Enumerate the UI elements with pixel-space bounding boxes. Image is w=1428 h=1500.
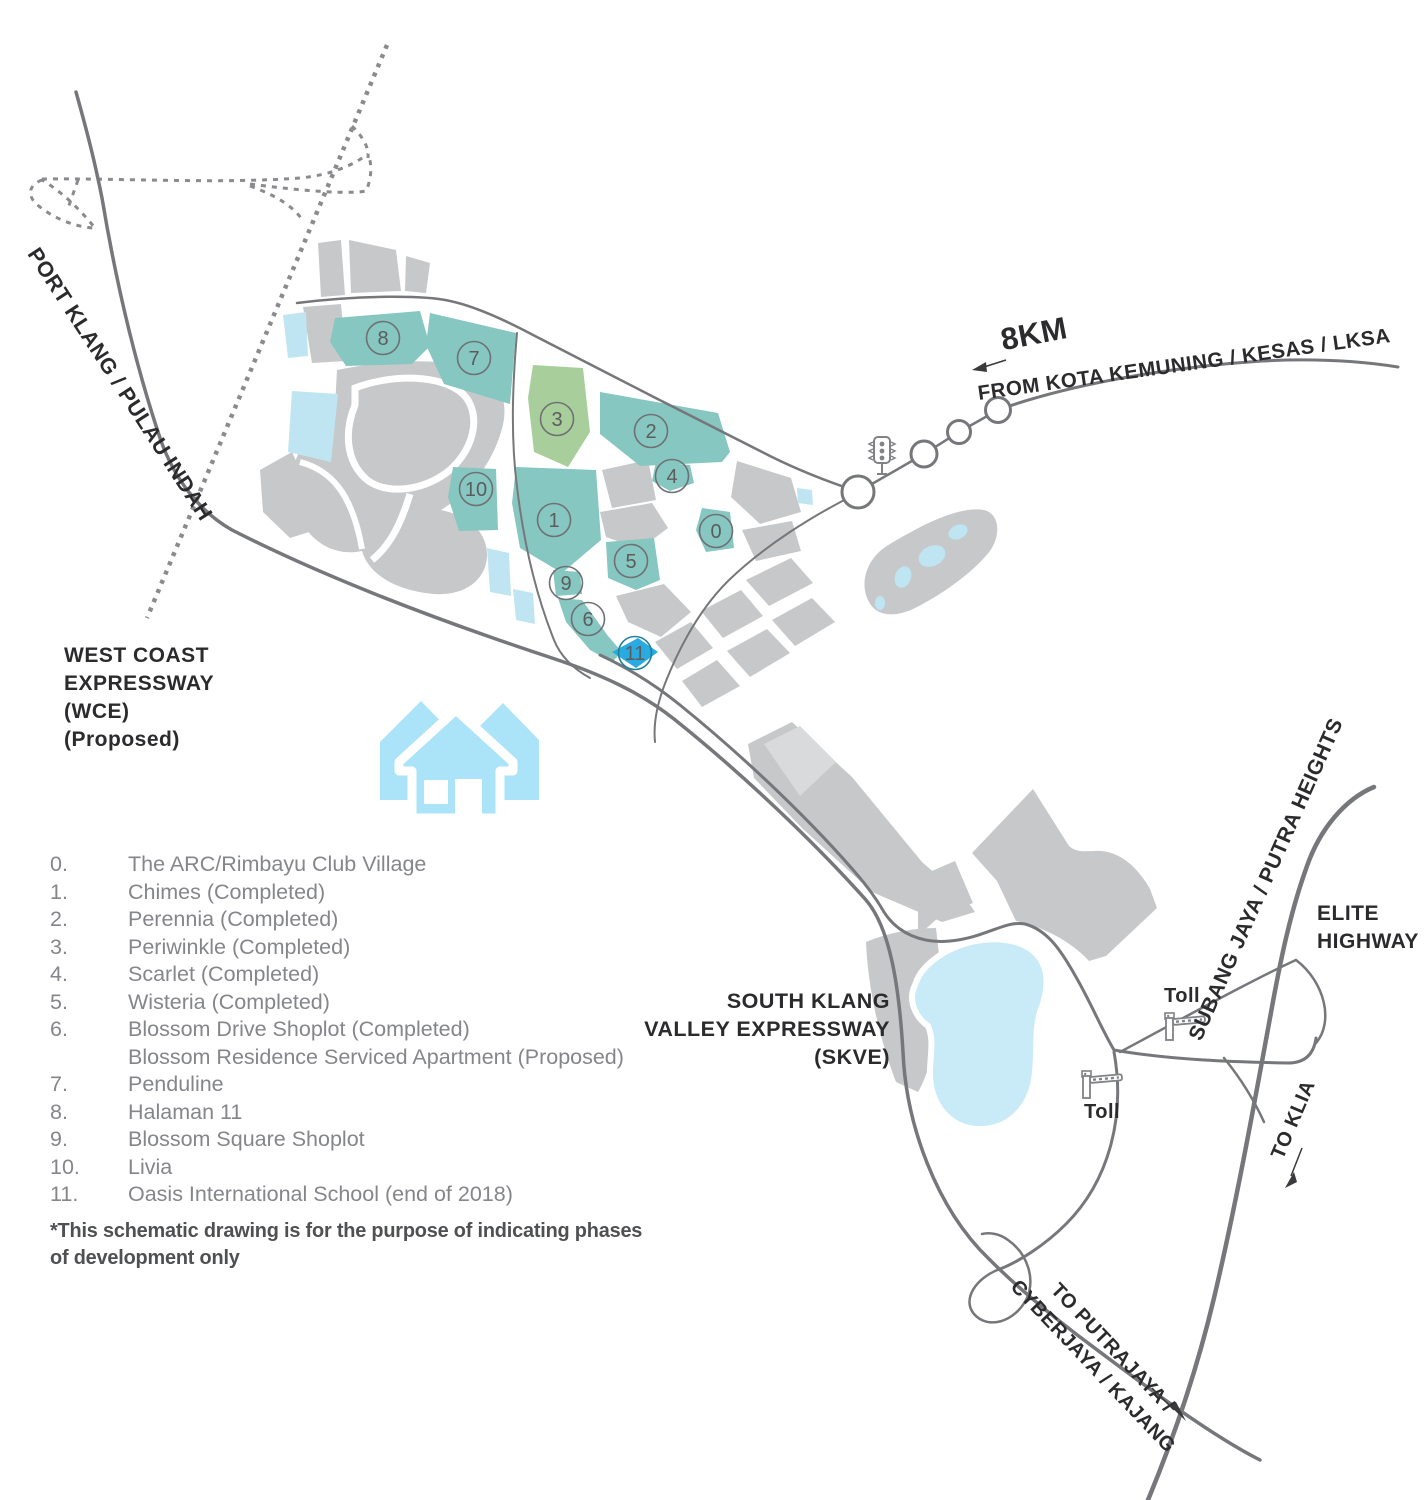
svg-text:3: 3 bbox=[551, 409, 562, 431]
svg-text:6: 6 bbox=[582, 609, 593, 631]
svg-text:4: 4 bbox=[666, 466, 677, 488]
gray-parcel bbox=[701, 590, 763, 638]
legend-item: 1.Chimes (Completed) bbox=[50, 879, 670, 907]
roundabouts bbox=[842, 398, 1011, 509]
svg-text:CYBERJAYA / KAJANG: CYBERJAYA / KAJANG bbox=[1006, 1276, 1180, 1457]
svg-text:8: 8 bbox=[377, 328, 388, 350]
svg-text:10: 10 bbox=[465, 479, 487, 501]
svg-text:HIGHWAY: HIGHWAY bbox=[1317, 930, 1419, 953]
road-to-elite-connector bbox=[1114, 1038, 1316, 1063]
roundabout bbox=[842, 476, 874, 508]
schematic-location-map: 8 7 3 2 10 4 1 0 5 9 6 11 PORT KLANG / P… bbox=[0, 0, 1428, 1500]
svg-text:0: 0 bbox=[710, 521, 721, 543]
legend-item: 7.Penduline bbox=[50, 1071, 670, 1099]
legend: 0.The ARC/Rimbayu Club Village 1.Chimes … bbox=[50, 851, 670, 1272]
label-wce: WEST COAST EXPRESSWAY (WCE) (Proposed) bbox=[64, 644, 214, 751]
svg-text:VALLEY EXPRESSWAY: VALLEY EXPRESSWAY bbox=[644, 1017, 890, 1041]
houses-icon bbox=[380, 701, 539, 818]
svg-text:2: 2 bbox=[645, 421, 656, 443]
svg-text:EXPRESSWAY: EXPRESSWAY bbox=[64, 672, 214, 695]
svg-text:(WCE): (WCE) bbox=[64, 700, 129, 723]
label-skve: SOUTH KLANG VALLEY EXPRESSWAY (SKVE) bbox=[644, 989, 890, 1069]
svg-text:(SKVE): (SKVE) bbox=[814, 1045, 890, 1069]
gray-mass bbox=[972, 789, 1157, 961]
legend-item: 3.Periwinkle (Completed) bbox=[50, 934, 670, 962]
gray-parcel bbox=[349, 240, 401, 293]
legend-footnote: *This schematic drawing is for the purpo… bbox=[50, 1217, 651, 1272]
gray-parcel bbox=[602, 460, 656, 508]
gray-parcel bbox=[772, 598, 835, 646]
label-to-klia: TO KLIA bbox=[1267, 1077, 1320, 1162]
legend-item: 5.Wisteria (Completed) bbox=[50, 989, 670, 1017]
label-subang-jaya: SUBANG JAYA / PUTRA HEIGHTS bbox=[1184, 715, 1347, 1044]
legend-item: 2.Perennia (Completed) bbox=[50, 906, 670, 934]
svg-text:(Proposed): (Proposed) bbox=[64, 728, 180, 751]
landscape-capsule bbox=[865, 509, 998, 614]
svg-text:SOUTH KLANG: SOUTH KLANG bbox=[727, 989, 890, 1013]
legend-item: 9.Blossom Square Shoplot bbox=[50, 1126, 670, 1154]
svg-text:WEST COAST: WEST COAST bbox=[64, 644, 209, 667]
legend-item: 8.Halaman 11 bbox=[50, 1099, 670, 1127]
svg-text:ELITE: ELITE bbox=[1317, 902, 1379, 925]
svg-text:1: 1 bbox=[548, 510, 559, 532]
gray-parcel bbox=[318, 240, 345, 297]
legend-item: 6.Blossom Drive Shoplot (Completed) bbox=[50, 1016, 670, 1044]
distance-arrow bbox=[972, 360, 1006, 372]
lake bbox=[912, 939, 1046, 1129]
svg-text:9: 9 bbox=[560, 573, 571, 595]
legend-item: 11.Oasis International School (end of 20… bbox=[50, 1181, 670, 1209]
road-ramp-loop bbox=[1296, 960, 1325, 1043]
label-8km: 8KM bbox=[998, 310, 1070, 357]
gray-parcel bbox=[727, 629, 790, 677]
roundabout bbox=[911, 441, 937, 467]
label-toll-south: Toll bbox=[1084, 1101, 1120, 1123]
svg-text:7: 7 bbox=[468, 348, 479, 370]
label-to-putrajaya: TO PUTRAJAYA / CYBERJAYA / KAJANG bbox=[1006, 1257, 1199, 1457]
svg-text:11: 11 bbox=[625, 643, 646, 665]
gray-parcel bbox=[742, 521, 801, 561]
roads bbox=[76, 92, 1398, 1500]
gray-parcel bbox=[746, 558, 813, 606]
gray-parcel bbox=[731, 461, 801, 524]
traffic-light-icon bbox=[869, 437, 895, 474]
label-toll-north: Toll bbox=[1164, 985, 1200, 1007]
gray-parcel bbox=[682, 660, 740, 707]
svg-text:5: 5 bbox=[625, 551, 636, 573]
roundabout bbox=[948, 421, 971, 444]
label-elite-highway: ELITE HIGHWAY bbox=[1317, 902, 1419, 953]
gray-parcel bbox=[405, 256, 430, 293]
legend-item: 10.Livia bbox=[50, 1154, 670, 1182]
legend-item: 4.Scarlet (Completed) bbox=[50, 961, 670, 989]
map-canvas: 8 7 3 2 10 4 1 0 5 9 6 11 PORT KLANG / P… bbox=[0, 0, 1428, 1500]
legend-item: Blossom Residence Serviced Apartment (Pr… bbox=[50, 1044, 670, 1072]
legend-item: 0.The ARC/Rimbayu Club Village bbox=[50, 851, 670, 879]
